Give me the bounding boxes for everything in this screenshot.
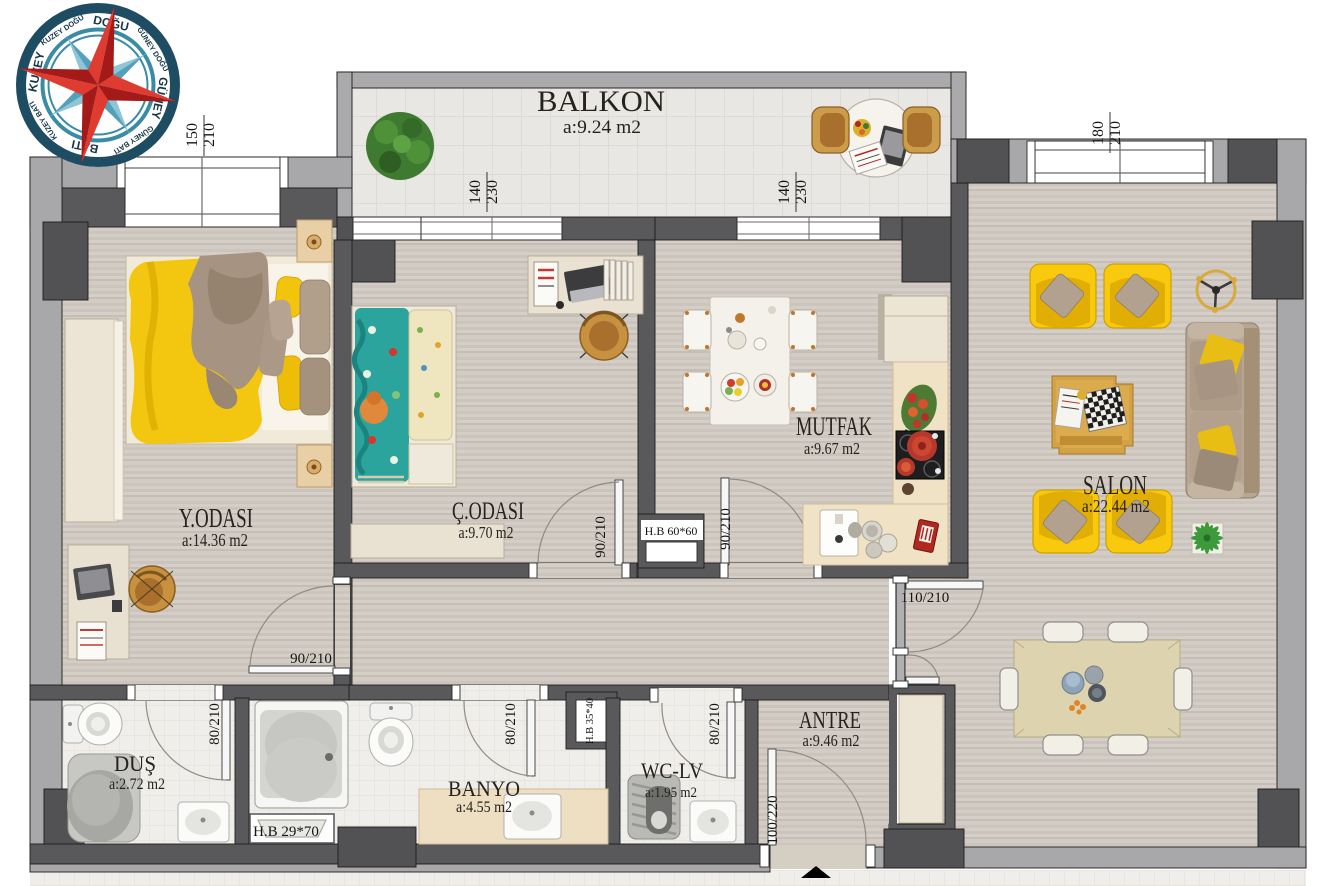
svg-text:MUTFAK: MUTFAK <box>796 412 872 441</box>
svg-text:80/210: 80/210 <box>207 703 223 745</box>
svg-text:Ç.ODASI: Ç.ODASI <box>452 498 524 525</box>
svg-text:a:9.67 m2: a:9.67 m2 <box>804 439 860 458</box>
svg-text:90/210: 90/210 <box>290 651 332 667</box>
svg-text:180: 180 <box>1090 121 1107 145</box>
svg-text:80/210: 80/210 <box>707 703 723 745</box>
svg-text:90/210: 90/210 <box>718 508 734 550</box>
svg-text:a:9.46 m2: a:9.46 m2 <box>803 731 860 750</box>
svg-text:140: 140 <box>776 180 793 204</box>
svg-text:BANYO: BANYO <box>448 776 520 801</box>
svg-text:a:2.72 m2: a:2.72 m2 <box>109 776 165 793</box>
svg-text:a:1.95 m2: a:1.95 m2 <box>645 785 697 801</box>
svg-text:WC-LV: WC-LV <box>641 758 703 783</box>
svg-text:H.B 60*60: H.B 60*60 <box>645 524 698 538</box>
svg-text:a:4.55 m2: a:4.55 m2 <box>456 799 512 816</box>
svg-text:80/210: 80/210 <box>503 703 519 745</box>
svg-text:H.B 29*70: H.B 29*70 <box>253 824 319 840</box>
svg-text:a:22.44 m2: a:22.44 m2 <box>1082 496 1150 516</box>
svg-text:90/210: 90/210 <box>593 516 609 558</box>
svg-text:110/210: 110/210 <box>901 590 950 606</box>
svg-text:H.B 35*40: H.B 35*40 <box>585 698 596 744</box>
svg-text:100/220: 100/220 <box>765 795 781 844</box>
svg-text:a:9.24 m2: a:9.24 m2 <box>563 117 641 138</box>
svg-text:140: 140 <box>467 180 484 204</box>
svg-text:a:9.70 m2: a:9.70 m2 <box>459 523 514 542</box>
svg-text:DUŞ: DUŞ <box>114 751 156 776</box>
svg-text:150: 150 <box>184 123 201 147</box>
svg-text:Y.ODASI: Y.ODASI <box>179 503 253 533</box>
svg-text:BALKON: BALKON <box>537 85 665 118</box>
svg-text:a:14.36 m2: a:14.36 m2 <box>182 530 248 550</box>
